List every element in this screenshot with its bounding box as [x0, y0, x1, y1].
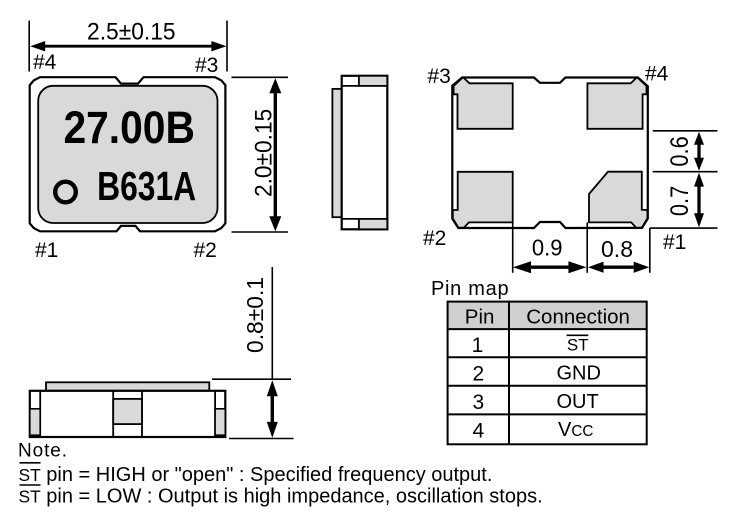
svg-text:#3: #3 [195, 54, 218, 77]
svg-text:Pin: Pin [465, 305, 495, 328]
svg-text:ST pin = LOW : Output is high: ST pin = LOW : Output is high impedance,… [19, 485, 543, 507]
svg-text:ST pin = HIGH or "open" : Spec: ST pin = HIGH or "open" : Specified freq… [19, 464, 493, 486]
svg-text:2.5±0.15: 2.5±0.15 [87, 19, 176, 46]
svg-text:VCC: VCC [558, 419, 593, 441]
svg-text:GND: GND [556, 363, 600, 385]
svg-text:#2: #2 [423, 227, 446, 250]
svg-text:Note.: Note. [18, 441, 68, 462]
svg-text:ST: ST [567, 335, 589, 354]
svg-text:4: 4 [472, 420, 484, 443]
svg-text:#3: #3 [428, 65, 451, 88]
svg-text:2: 2 [472, 362, 484, 385]
svg-text:#4: #4 [645, 63, 669, 86]
svg-text:0.8±0.1: 0.8±0.1 [242, 277, 268, 353]
svg-text:0.8: 0.8 [601, 236, 633, 262]
svg-text:Pin map: Pin map [431, 278, 509, 300]
svg-text:Connection: Connection [526, 305, 630, 328]
svg-text:3: 3 [472, 391, 484, 414]
svg-text:0.6: 0.6 [666, 136, 694, 166]
svg-text:#1: #1 [35, 239, 58, 262]
svg-text:OUT: OUT [556, 391, 598, 413]
svg-text:2.0±0.15: 2.0±0.15 [250, 109, 277, 197]
svg-text:0.7: 0.7 [666, 186, 694, 216]
svg-text:#4: #4 [33, 51, 57, 74]
svg-text:#1: #1 [663, 231, 686, 254]
svg-text:#2: #2 [194, 239, 217, 262]
svg-text:1: 1 [472, 334, 484, 357]
svg-text:27.00B: 27.00B [63, 102, 195, 153]
svg-text:B631A: B631A [97, 163, 196, 209]
svg-text:0.9: 0.9 [532, 235, 563, 261]
